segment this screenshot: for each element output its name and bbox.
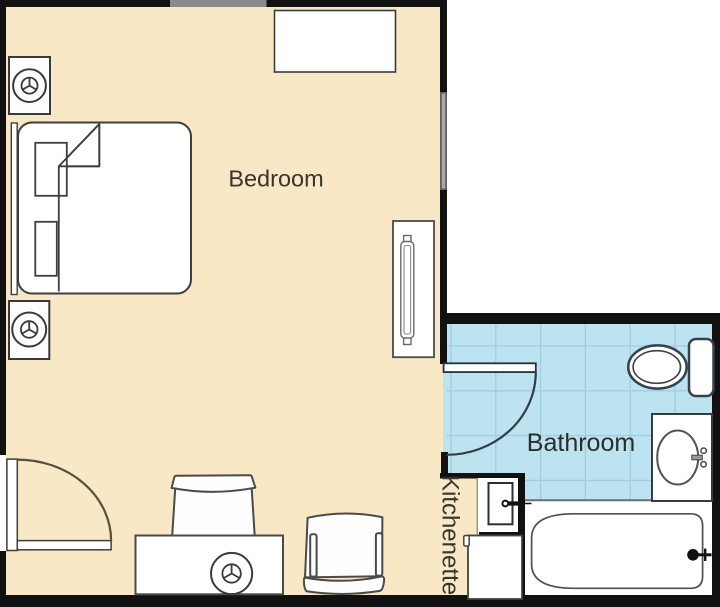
- svg-text:Kitchenette: Kitchenette: [437, 475, 464, 595]
- svg-text:Bedroom: Bedroom: [228, 166, 323, 192]
- svg-text:Bathroom: Bathroom: [527, 429, 635, 457]
